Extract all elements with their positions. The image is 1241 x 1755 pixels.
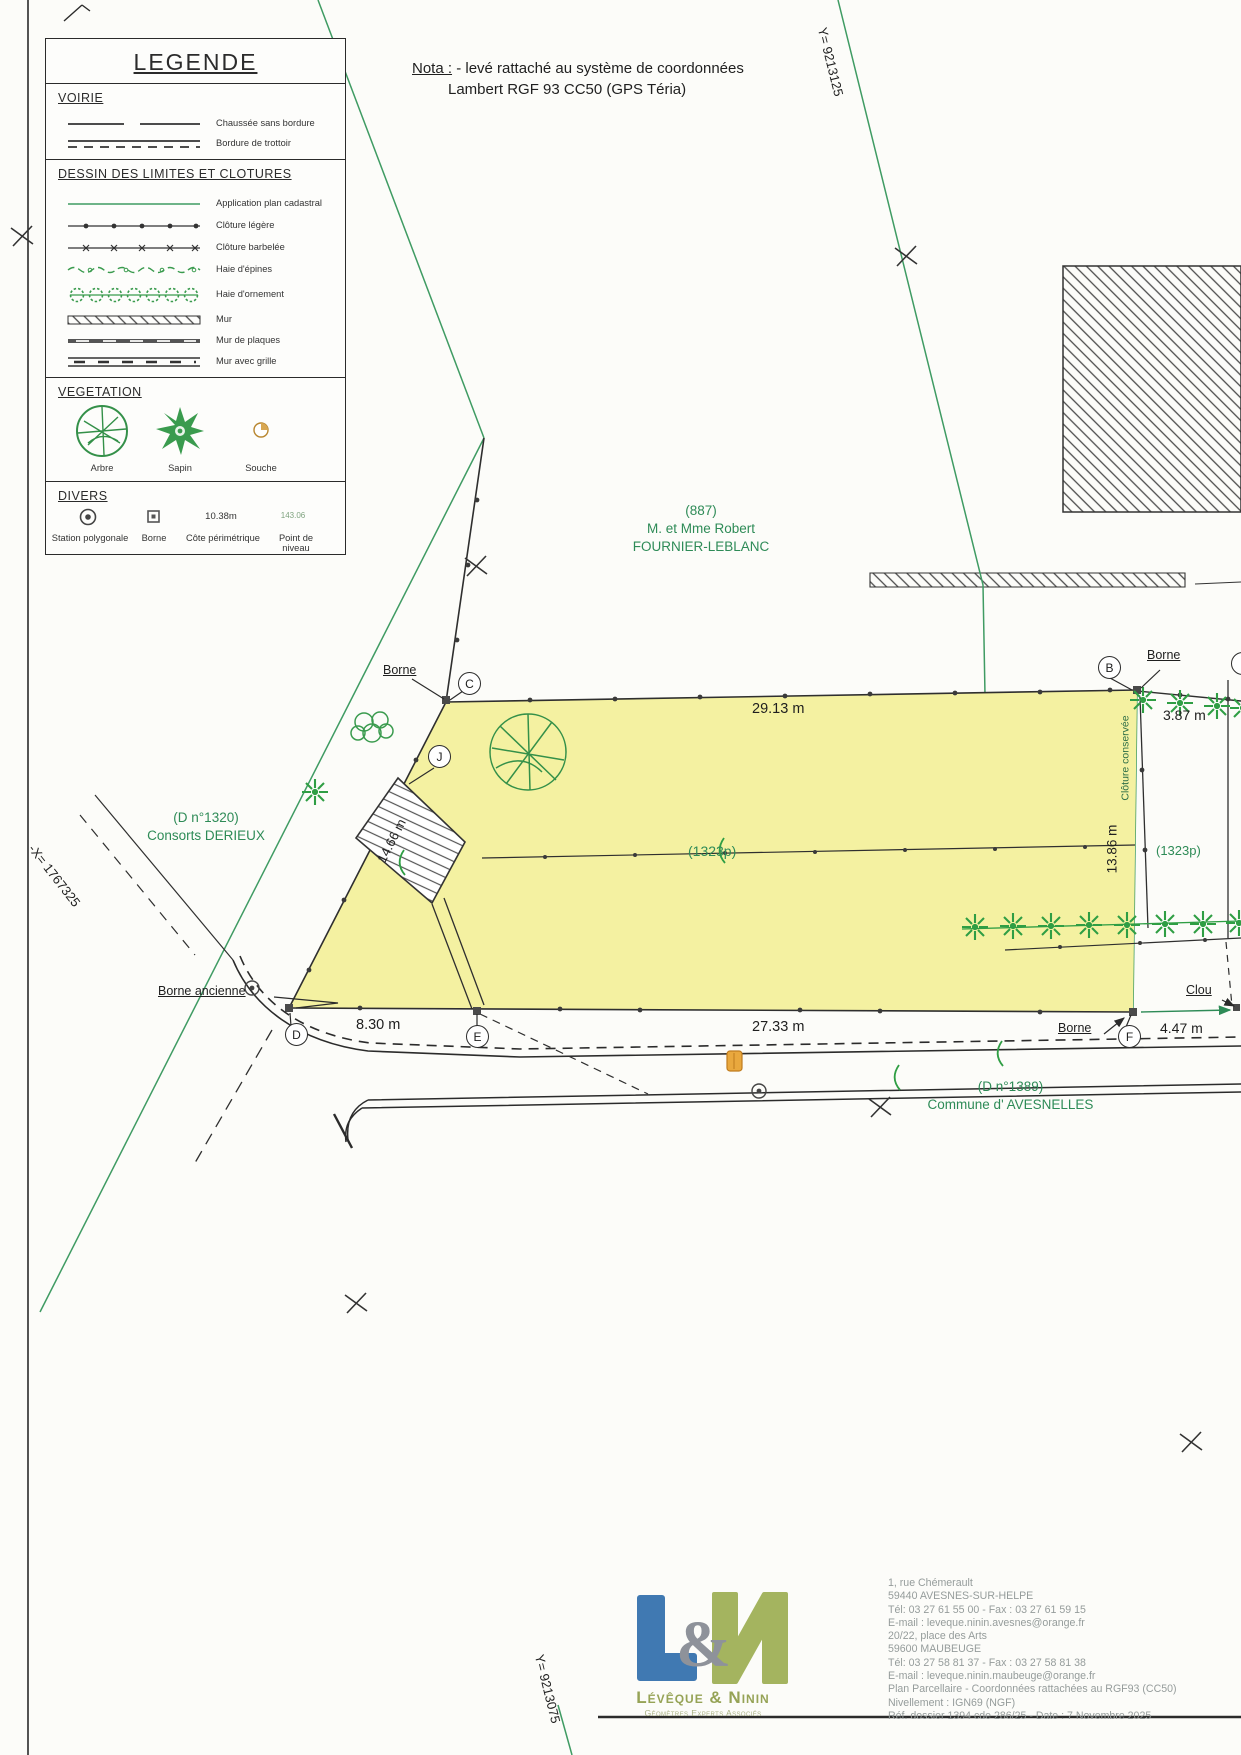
- point-circle-j: J: [428, 745, 451, 768]
- legend-section-limites: DESSIN DES LIMITES ET CLOTURES: [58, 167, 292, 181]
- parcel-1323p-label: (1323p): [688, 843, 736, 861]
- legend-label: Chaussée sans bordure: [216, 118, 315, 128]
- niveau-example-value: 143.06: [281, 511, 305, 520]
- legend-section-vegetation: VEGETATION: [58, 385, 142, 399]
- station-polygonale-icon: [76, 507, 100, 527]
- symbol-haie-ornement: [64, 285, 204, 305]
- symbol-cloture-barbelee: [64, 241, 204, 255]
- dim-right-top: 3.87 m: [1163, 707, 1206, 725]
- borne-label-top-left: Borne: [383, 663, 416, 679]
- address-line: 59600 MAUBEUGE: [888, 1643, 1177, 1656]
- company-name: Lévêque & Ninin: [613, 1688, 793, 1708]
- company-subtitle: Géomètres Experts Associés: [613, 1708, 793, 1718]
- dim-bottom-mid: 27.33 m: [752, 1018, 804, 1036]
- dim-right-side: 13.86 m: [1105, 825, 1122, 874]
- symbol-mur-plaques: [64, 334, 204, 348]
- point-circle-e: E: [466, 1025, 489, 1048]
- symbol-haie-epines: [64, 263, 204, 277]
- sapin-icon: [154, 405, 206, 457]
- legend-label: Bordure de trottoir: [216, 138, 291, 148]
- address-line: 59440 AVESNES-SUR-HELPE: [888, 1590, 1177, 1603]
- parcel-1320-label: (D n°1320) Consorts DERIEUX: [108, 809, 304, 845]
- legend-section-divers: DIVERS: [58, 489, 108, 503]
- cloture-conservee-label: Clôture conservée: [1119, 715, 1132, 800]
- dim-bottom-right: 4.47 m: [1160, 1020, 1203, 1038]
- point-circle-d: D: [285, 1023, 308, 1046]
- arbre-icon: [74, 403, 130, 459]
- legend-panel: LEGENDE VOIRIE Chaussée sans bordure Bor…: [45, 38, 346, 555]
- address-line: E-mail : leveque.ninin.avesnes@orange.fr: [888, 1617, 1177, 1630]
- survey-plan-page: LEGENDE VOIRIE Chaussée sans bordure Bor…: [0, 0, 1241, 1755]
- symbol-chaussee: [64, 117, 204, 131]
- souche-icon: [250, 419, 272, 441]
- borne-ancienne-label: Borne ancienne: [158, 984, 246, 1000]
- legend-title: LEGENDE: [46, 49, 345, 76]
- symbol-bordure: [64, 137, 204, 151]
- address-line: Nivellement : IGN69 (NGF): [888, 1697, 1177, 1710]
- nota-text: Nota : - levé rattaché au système de coo…: [412, 60, 744, 79]
- symbol-mur: [64, 313, 204, 327]
- parcel-1323p-right-label: (1323p): [1156, 843, 1201, 859]
- address-line: Plan Parcellaire - Coordonnées rattachée…: [888, 1683, 1177, 1696]
- address-line: E-mail : leveque.ninin.maubeuge@orange.f…: [888, 1670, 1177, 1683]
- address-line: Tél: 03 27 58 81 37 - Fax : 03 27 58 81 …: [888, 1657, 1177, 1670]
- address-line: Réf. dossier 1394 cde 286/25 - Date : 7 …: [888, 1710, 1177, 1723]
- point-circle-f: F: [1118, 1025, 1141, 1048]
- dim-top: 29.13 m: [752, 700, 804, 718]
- company-address-block: 1, rue Chémerault 59440 AVESNES-SUR-HELP…: [888, 1577, 1177, 1723]
- address-line: 1, rue Chémerault: [888, 1577, 1177, 1590]
- borne-label-top-right: Borne: [1147, 648, 1180, 664]
- dim-bottom-left: 8.30 m: [356, 1016, 400, 1034]
- parcel-887-label: (887) M. et Mme Robert FOURNIER-LEBLANC: [562, 502, 840, 556]
- parcel-1389-label: (D n°1389) Commune d' AVESNELLES: [888, 1078, 1133, 1114]
- legend-section-voirie: VOIRIE: [58, 91, 103, 105]
- logo-ampersand: &: [676, 1608, 731, 1681]
- clou-label: Clou: [1186, 983, 1212, 999]
- address-line: Tél: 03 27 61 55 00 - Fax : 03 27 61 59 …: [888, 1604, 1177, 1617]
- cote-example-value: 10.38m: [205, 511, 237, 522]
- address-line: 20/22, place des Arts: [888, 1630, 1177, 1643]
- hatched-building: [870, 266, 1241, 587]
- symbol-cadastral: [64, 197, 204, 211]
- gate-marker: [727, 1051, 742, 1071]
- symbol-mur-grille: [64, 355, 204, 369]
- bush-symbol: [351, 712, 393, 742]
- point-circle-c: C: [458, 672, 481, 695]
- symbol-cloture-legere: [64, 219, 204, 233]
- leveque-ninin-logo: &: [618, 1590, 788, 1690]
- point-circle-b: B: [1098, 656, 1121, 679]
- borne-label-bottom: Borne: [1058, 1021, 1091, 1037]
- borne-icon: [146, 509, 162, 525]
- nota-text-line2: Lambert RGF 93 CC50 (GPS Téria): [448, 81, 686, 100]
